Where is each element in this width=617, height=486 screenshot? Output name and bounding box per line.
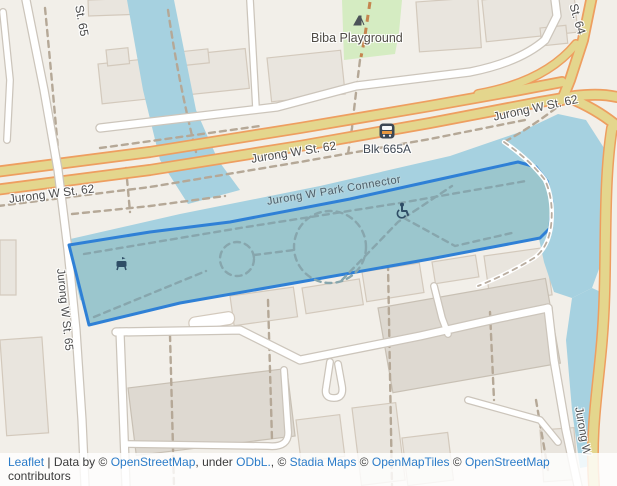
building bbox=[416, 0, 481, 52]
bus-stop-icon bbox=[380, 124, 395, 139]
openmaptiles-link[interactable]: OpenMapTiles bbox=[372, 455, 450, 469]
park-area bbox=[342, 0, 402, 60]
building bbox=[0, 240, 16, 295]
attribution-text: contributors bbox=[8, 469, 71, 483]
openstreetmap-link-2[interactable]: OpenStreetMap bbox=[465, 455, 550, 469]
attribution-text: © bbox=[449, 455, 465, 469]
attribution-text: , under bbox=[195, 455, 236, 469]
attribution-text: © bbox=[356, 455, 372, 469]
openstreetmap-link-1[interactable]: OpenStreetMap bbox=[111, 455, 196, 469]
stadia-maps-link[interactable]: Stadia Maps bbox=[290, 455, 357, 469]
map[interactable]: St. 65 Jurong W St. 62 Jurong W St. 62 J… bbox=[0, 0, 617, 486]
attribution-bar: Leaflet | Data by © OpenStreetMap, under… bbox=[0, 453, 617, 486]
building bbox=[0, 337, 49, 436]
building bbox=[106, 48, 130, 66]
attribution-text: | Data by © bbox=[44, 455, 111, 469]
attribution-text: , © bbox=[271, 455, 290, 469]
leaflet-link[interactable]: Leaflet bbox=[8, 455, 44, 469]
odbl-link[interactable]: ODbL. bbox=[236, 455, 271, 469]
map-canvas[interactable] bbox=[0, 0, 617, 486]
